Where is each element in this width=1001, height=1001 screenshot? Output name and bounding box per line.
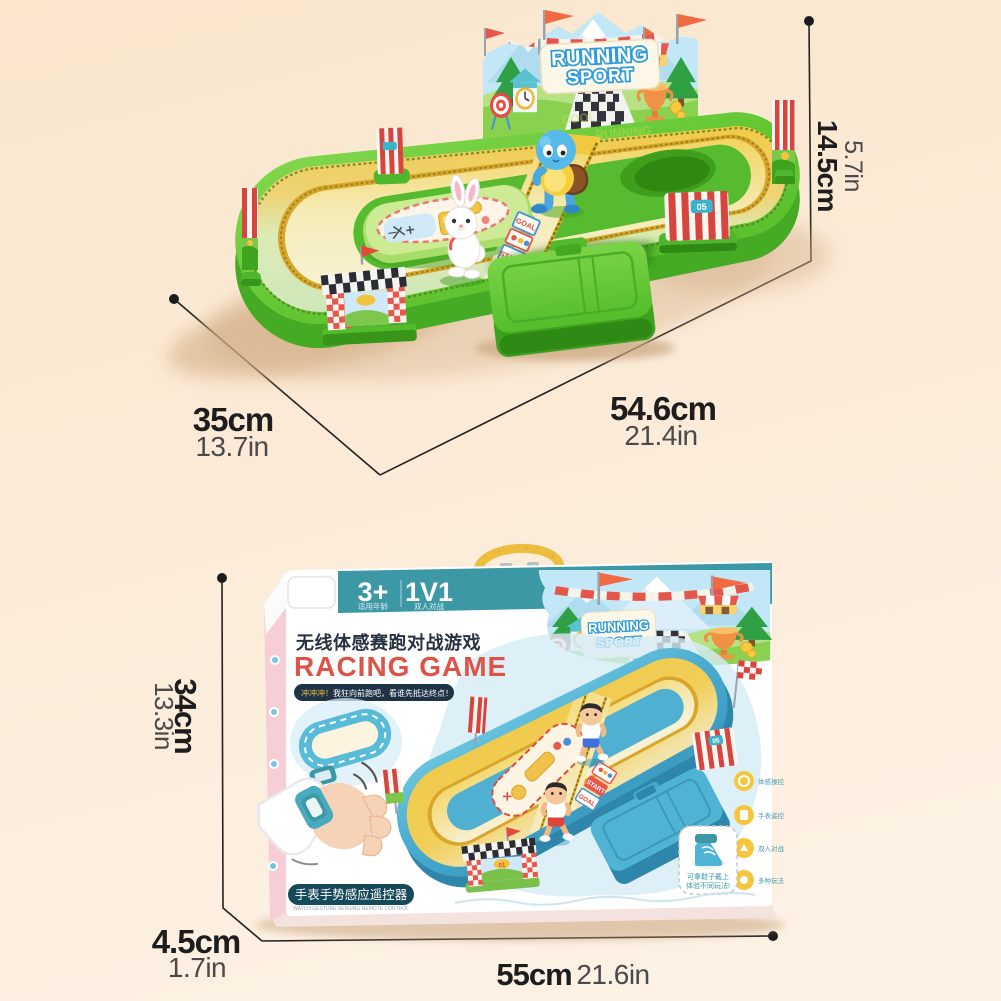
svg-text:双人对战: 双人对战 bbox=[414, 601, 444, 611]
svg-text:手表手势感应遥控器: 手表手势感应遥控器 bbox=[295, 887, 408, 902]
svg-text:1.7in: 1.7in bbox=[168, 952, 226, 983]
svg-text:21.6in: 21.6in bbox=[576, 959, 649, 990]
svg-text:双人对战: 双人对战 bbox=[758, 844, 785, 853]
svg-text:WATCH GESTURE SENSING REMOTE C: WATCH GESTURE SENSING REMOTE CONTROL bbox=[293, 906, 409, 912]
svg-text:SPORT: SPORT bbox=[567, 64, 635, 87]
svg-text:55cm: 55cm bbox=[496, 957, 571, 992]
svg-text:RACING GAME: RACING GAME bbox=[294, 651, 507, 682]
svg-text:14.5cm: 14.5cm bbox=[812, 120, 843, 212]
svg-text:RUNNING: RUNNING bbox=[588, 617, 649, 635]
svg-text:体验不同玩法!: 体验不同玩法! bbox=[686, 881, 730, 890]
svg-text:可拿鞋子戴上: 可拿鞋子戴上 bbox=[687, 872, 729, 881]
svg-text:冲冲冲！我狂向前跑吧，看谁先抵达终点！: 冲冲冲！我狂向前跑吧，看谁先抵达终点！ bbox=[301, 688, 453, 698]
svg-text:适用年龄: 适用年龄 bbox=[358, 601, 388, 611]
svg-text:21.4in: 21.4in bbox=[624, 420, 697, 451]
svg-text:01: 01 bbox=[498, 862, 506, 869]
svg-text:体感操控: 体感操控 bbox=[758, 777, 785, 786]
svg-text:05: 05 bbox=[712, 737, 721, 745]
svg-text:无线体感赛跑对战游戏: 无线体感赛跑对战游戏 bbox=[296, 632, 481, 653]
svg-text:13.3in: 13.3in bbox=[149, 682, 179, 750]
svg-text:手表遥控: 手表遥控 bbox=[758, 811, 785, 820]
svg-text:多种玩法: 多种玩法 bbox=[758, 876, 785, 885]
svg-text:05: 05 bbox=[697, 202, 707, 212]
svg-text:13.7in: 13.7in bbox=[195, 431, 268, 462]
